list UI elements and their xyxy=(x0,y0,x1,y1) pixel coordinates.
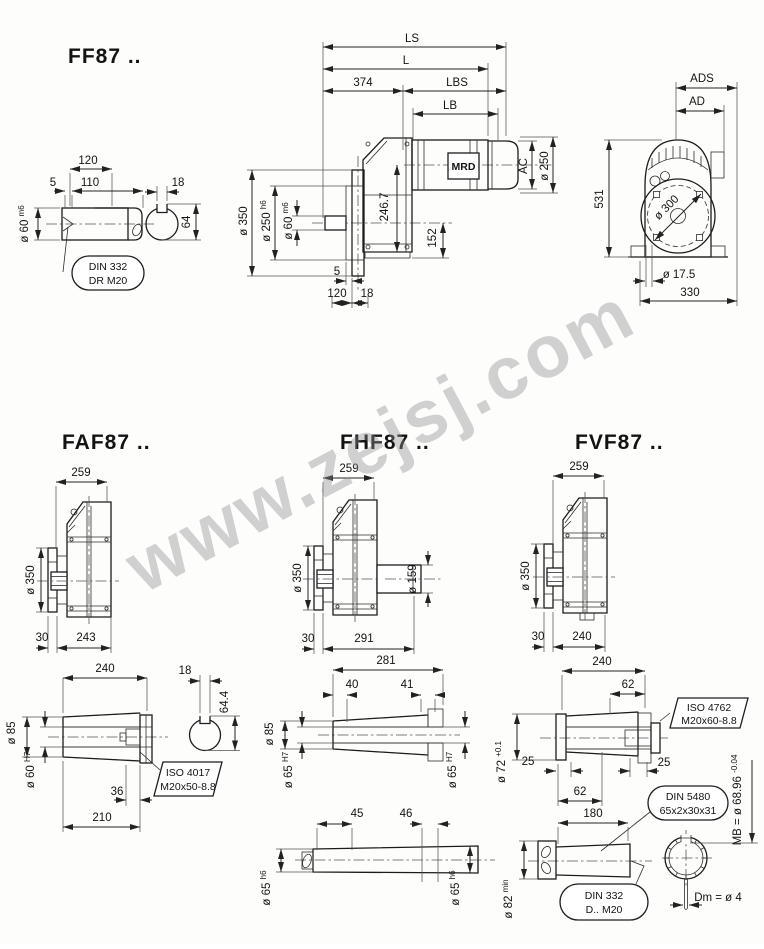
dim-240: 240 xyxy=(592,656,611,668)
flange-circle xyxy=(641,179,715,253)
drawing-page: FF87 .. DIN 332 DR M20 120 5 110 ø 60 m6… xyxy=(0,0,764,944)
dim-243: 243 xyxy=(76,632,95,644)
dim-dia17-5: ø 17.5 xyxy=(663,269,696,281)
dim-dm-pin: Dm = ø 4 xyxy=(694,892,742,904)
ff87-title: FF87 .. xyxy=(68,45,142,68)
dim-l: L xyxy=(403,55,410,67)
dim-dia72: ø 72 +0.1 xyxy=(494,740,508,783)
dim-246-7: 246.7 xyxy=(379,193,391,222)
fvf87-hollow-shaft-detail: ISO 4762 M20x60-8.8 240 62 ø 72 +0.1 25 … xyxy=(494,656,748,820)
dim-ad: AD xyxy=(689,96,705,108)
dim-240: 240 xyxy=(572,631,591,643)
fhf87-hollow-shaft-detail: 281 40 41 ø 85 ø 65 H7 ø 65 H7 xyxy=(264,655,470,788)
output-shaft-stub xyxy=(325,216,346,230)
dim-259: 259 xyxy=(569,461,588,473)
terminal-box-edge xyxy=(711,152,724,178)
ff87-shaft-end-view: DIN 332 DR M20 120 5 110 ø 60 m6 xyxy=(17,155,154,290)
dim-dia85: ø 85 xyxy=(264,722,276,745)
dim-64-4: 64.4 xyxy=(219,690,231,713)
dim-152: 152 xyxy=(427,228,439,247)
dim-dia65h7-left: ø 65 H7 xyxy=(281,751,295,788)
dim-45: 45 xyxy=(351,808,364,820)
dim-240: 240 xyxy=(95,663,114,675)
callout-din5480-line1: DIN 5480 xyxy=(666,791,711,803)
dim-18: 18 xyxy=(172,177,185,189)
dim-62-bottom: 62 xyxy=(574,786,587,798)
fvf87-side-view: 259 ø 350 30 240 xyxy=(520,461,615,652)
fhf87-solid-shaft-detail: 45 46 ø 65 h6 ø 65 h6 xyxy=(259,808,495,906)
dim-lbs: LBS xyxy=(446,77,468,89)
faf87-hollow-shaft-detail: ø 85 ø 60 H7 240 18 64.4 ISO 4017 M20x50… xyxy=(6,663,240,832)
dim-30: 30 xyxy=(532,631,545,643)
dim-dia350: ø 350 xyxy=(292,563,304,592)
watermark-text: www.zejsj.com xyxy=(111,271,648,609)
dim-110: 110 xyxy=(81,177,99,189)
dim-mb-over-pins: MB = ø 68.96 -0.04 xyxy=(730,754,744,845)
dim-120b: 120 xyxy=(327,288,346,300)
dim-dia60m6: ø 60 m6 xyxy=(281,202,295,240)
dim-30: 30 xyxy=(302,633,315,645)
callout-din332-line1: DIN 332 xyxy=(585,890,624,902)
callout-iso4017-line2: M20x50-8.8 xyxy=(160,781,216,793)
ff87-front-view: ø 300 531 ADS AD ø 17.5 330 xyxy=(594,73,737,306)
callout-iso4762-line1: ISO 4762 xyxy=(687,702,732,714)
callout-din332-line1: DIN 332 xyxy=(89,261,128,273)
callout-iso4762-line2: M20x60-8.8 xyxy=(681,715,737,727)
dim-dia60m6: ø 60 m6 xyxy=(17,205,31,243)
callout-din332-line2: D.. M20 xyxy=(586,904,623,916)
dim-dia350: ø 350 xyxy=(520,561,532,590)
dim-dia82: ø 82 min xyxy=(501,879,515,918)
motor-brand-label: MRD xyxy=(452,161,476,173)
dim-ads: ADS xyxy=(690,73,714,85)
fvf87-section: FVF87 .. 259 ø 350 30 240 ISO 4762 M20x6… xyxy=(494,431,758,920)
ff87-side-view: MRD LS L 374 LBS LB AC ø 250 ø 350 ø 250… xyxy=(238,33,558,308)
dim-41: 41 xyxy=(401,679,414,691)
dim-dia65h6-right: ø 65 h6 xyxy=(448,870,462,906)
dim-531: 531 xyxy=(594,189,606,208)
dim-30: 30 xyxy=(36,632,49,644)
dim-330: 330 xyxy=(680,287,699,299)
dim-64: 64 xyxy=(181,215,193,228)
dim-5b: 5 xyxy=(334,266,340,278)
callout-din5480-line2: 65x2x30x31 xyxy=(660,805,717,817)
dim-374: 374 xyxy=(353,77,373,89)
dim-180: 180 xyxy=(583,808,602,820)
dim-62-top: 62 xyxy=(622,679,635,691)
dim-dia250: ø 250 xyxy=(539,151,551,180)
dim-5: 5 xyxy=(50,177,56,189)
dim-120: 120 xyxy=(78,155,97,167)
faf87-side-view: 259 ø 350 30 243 xyxy=(25,467,119,653)
dim-lb: LB xyxy=(443,100,457,112)
dim-18b: 18 xyxy=(361,288,374,300)
callout-iso4017-line1: ISO 4017 xyxy=(166,767,211,779)
dim-dia65h7-right: ø 65 H7 xyxy=(445,751,459,788)
dim-dia350: ø 350 xyxy=(25,565,37,594)
dim-281: 281 xyxy=(376,655,395,667)
fvf87-title: FVF87 .. xyxy=(575,431,664,454)
dim-ac: AC xyxy=(518,158,530,174)
faf87-title: FAF87 .. xyxy=(62,431,151,454)
dim-dia250h6: ø 250 h6 xyxy=(259,200,273,242)
dim-259: 259 xyxy=(71,467,90,479)
fvf87-solid-shaft-detail: 180 ø 82 min DIN 332 D.. M20 Dm = ø 4 MB… xyxy=(501,754,758,920)
ff87-key-section-view: 18 64 xyxy=(145,177,201,240)
dim-210: 210 xyxy=(92,812,111,824)
dim-25-left: 25 xyxy=(522,756,535,768)
dim-25-right: 25 xyxy=(658,757,671,769)
dim-40: 40 xyxy=(346,679,359,691)
spline-section-view: Dm = ø 4 MB = ø 68.96 -0.04 xyxy=(662,754,758,909)
dim-18: 18 xyxy=(179,665,192,677)
dim-46: 46 xyxy=(400,808,413,820)
dim-dia85: ø 85 xyxy=(6,721,18,744)
cooling-fins xyxy=(652,146,701,168)
dim-291: 291 xyxy=(354,633,373,645)
dim-dia65h6-left: ø 65 h6 xyxy=(259,870,273,906)
dim-36: 36 xyxy=(111,786,124,798)
ff87-section: FF87 .. DIN 332 DR M20 120 5 110 ø 60 m6… xyxy=(17,33,737,308)
callout-din332-line2: DR M20 xyxy=(89,275,128,287)
dim-dia350: ø 350 xyxy=(238,206,250,235)
dim-dia159: ø 159 xyxy=(407,564,419,593)
dim-ls: LS xyxy=(405,33,419,45)
gearmotor-dimension-drawing: FF87 .. DIN 332 DR M20 120 5 110 ø 60 m6… xyxy=(0,0,764,944)
